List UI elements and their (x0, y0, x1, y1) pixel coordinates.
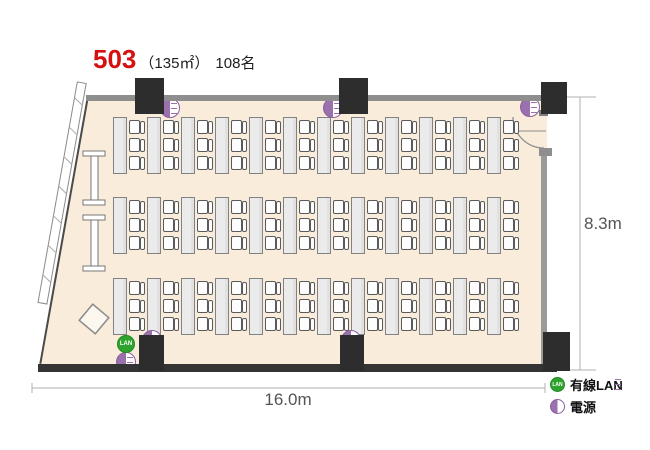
dimension-height-label: 8.3m (584, 214, 622, 234)
room-area: （135㎡） (139, 52, 209, 73)
text-layer: 503 （135㎡） 108名 16.0m 8.3m LAN 有線LAN 電源 (0, 0, 650, 450)
dimension-width-label: 16.0m (243, 390, 333, 410)
lan-icon: LAN (550, 377, 565, 392)
legend-power-label: 電源 (570, 397, 596, 416)
legend: LAN 有線LAN 電源 (550, 375, 623, 416)
room-title: 503 （135㎡） 108名 (93, 46, 255, 73)
power-outlet-icon (550, 399, 565, 414)
room-capacity: 108名 (215, 52, 255, 73)
legend-row-power: 電源 (550, 397, 623, 416)
room-number: 503 (93, 46, 136, 72)
legend-row-lan: LAN 有線LAN (550, 375, 623, 394)
floor-plan-page: LAN 503 （135㎡） 108名 16.0m 8.3m LAN 有線LAN… (0, 0, 650, 450)
